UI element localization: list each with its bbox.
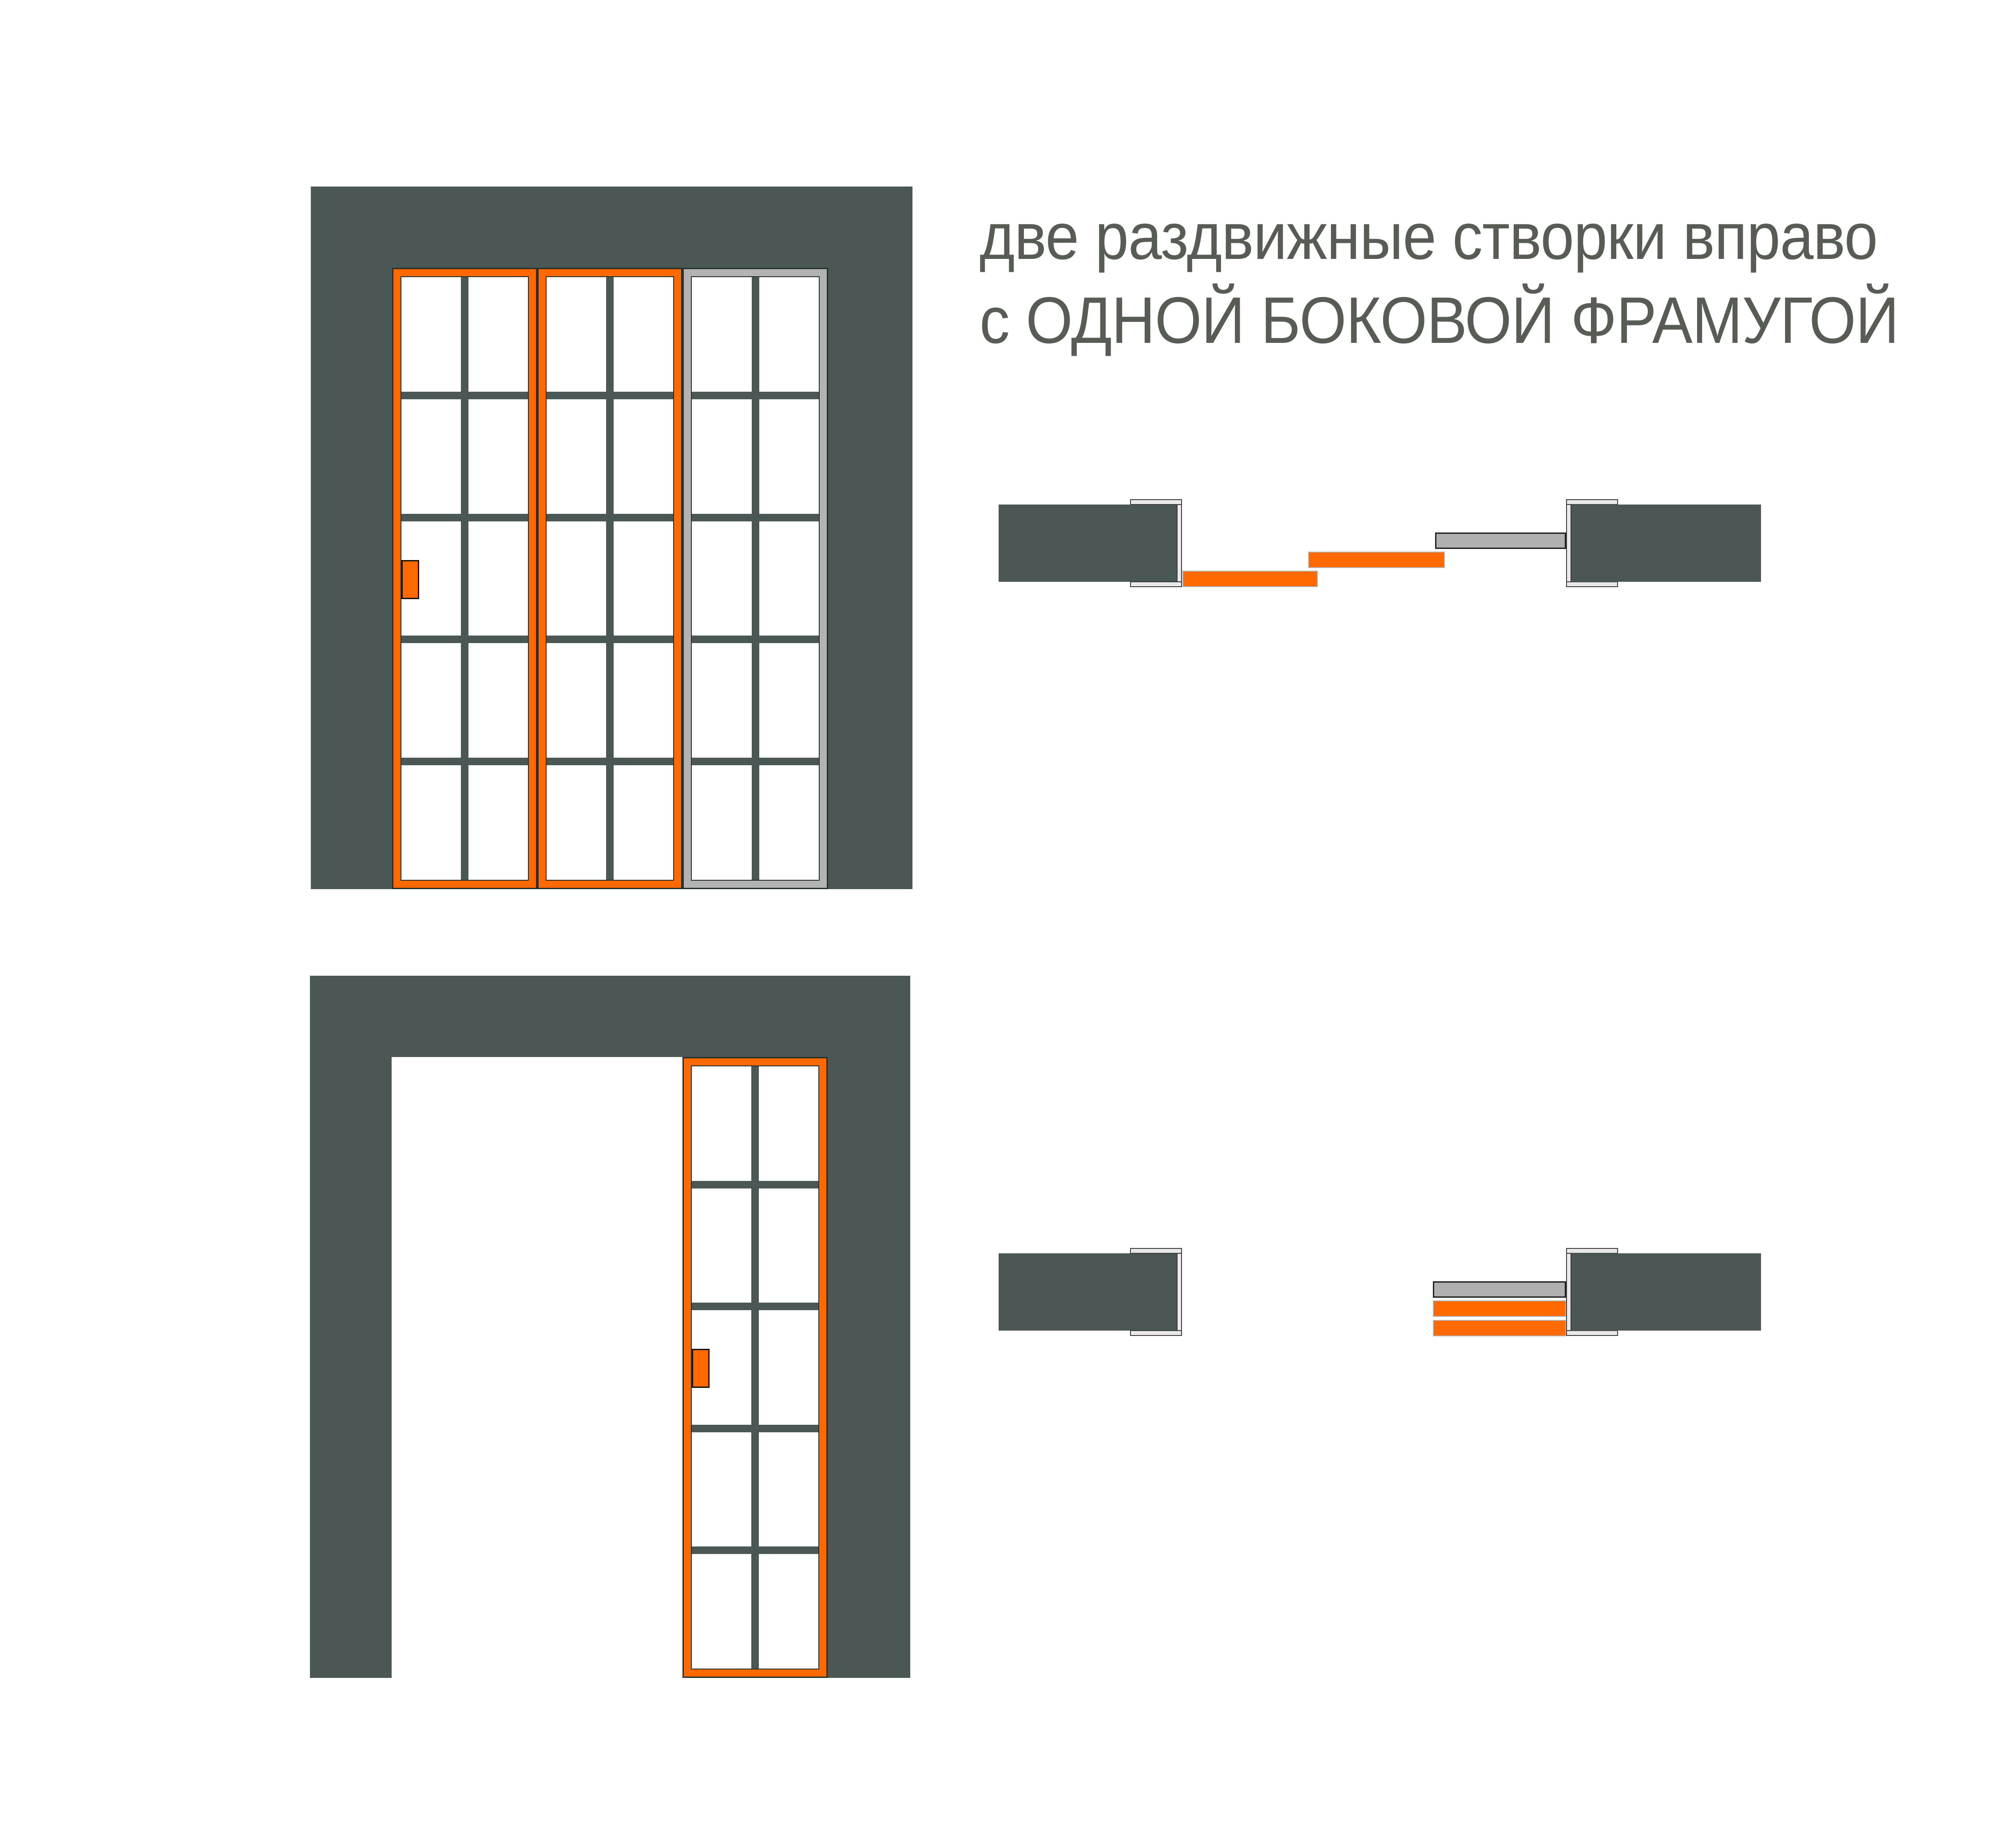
plan-open-left-track-strip	[1177, 1248, 1182, 1336]
sliding-door-diagram: две раздвижные створки вправо с ОДНОЙ БО…	[0, 0, 2011, 1848]
plan-open-leaf-2	[1433, 1300, 1566, 1317]
plan-view-open	[0, 0, 2011, 1848]
plan-open-right-track-cap-bottom	[1566, 1330, 1618, 1336]
plan-open-wall-left	[999, 1253, 1177, 1331]
plan-open-left-track-cap-top	[1130, 1248, 1182, 1254]
door-handle-icon	[401, 560, 419, 599]
plan-open-right-track-strip	[1566, 1248, 1571, 1336]
plan-open-side-transom	[1433, 1281, 1566, 1298]
door-handle-icon	[692, 1349, 710, 1388]
plan-open-left-track-cap-bottom	[1130, 1330, 1182, 1336]
plan-open-wall-right	[1571, 1253, 1761, 1331]
plan-open-leaf-1	[1433, 1320, 1566, 1336]
